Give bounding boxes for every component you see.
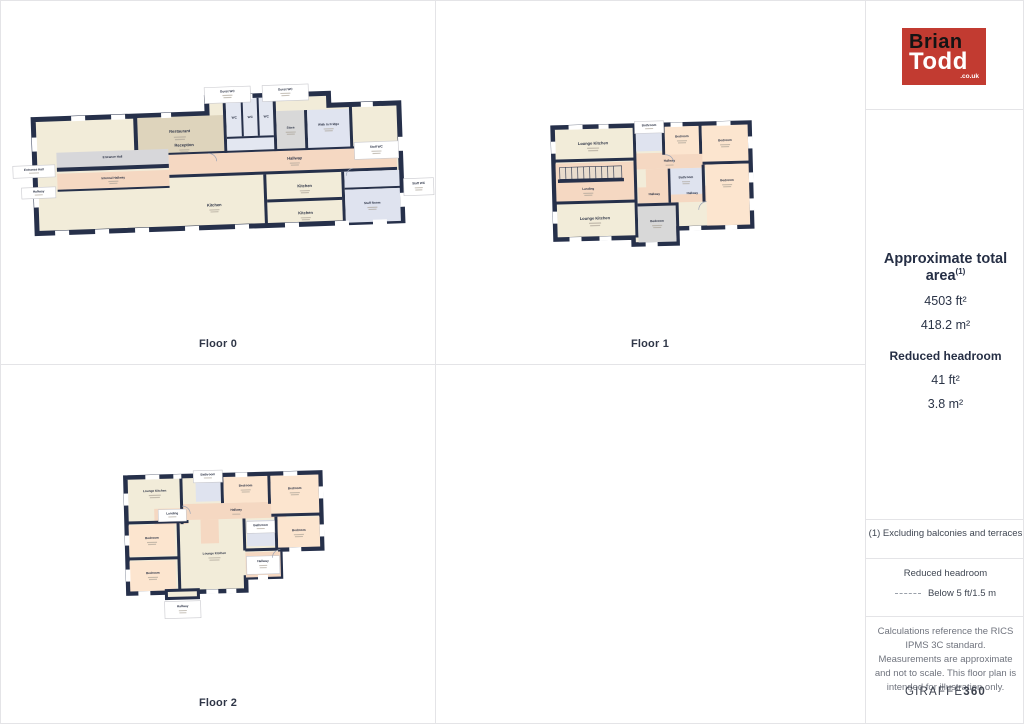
- room-label: Lounge Kitchen: [203, 551, 227, 556]
- sidebar: Brian Todd .co.uk Approximate total area…: [866, 1, 1024, 724]
- area-summary: Approximate total area(1) 4503 ft² 418.2…: [866, 251, 1024, 411]
- exclusion-note: (1) Excluding balconies and terraces: [866, 528, 1024, 539]
- store-room: [276, 110, 305, 151]
- svg-text:Bathroom: Bathroom: [642, 123, 657, 127]
- room-label: Bedroom: [675, 134, 689, 138]
- room-label: WC: [264, 114, 270, 118]
- room-label: WC: [232, 115, 238, 119]
- total-area-m: 418.2 m²: [866, 318, 1024, 332]
- room-label: Internal Hallway: [101, 175, 125, 180]
- total-area-ft: 4503 ft²: [866, 294, 1024, 308]
- bedroom-room: [706, 164, 751, 226]
- credit-normal: GIRAFFE: [905, 686, 963, 698]
- staff-room: [345, 188, 401, 223]
- svg-text:Guest WC: Guest WC: [220, 89, 236, 94]
- room-label: Bedroom: [239, 483, 253, 487]
- hallway-callout: Hallway: [22, 187, 56, 199]
- credit-bold: 360: [963, 686, 986, 698]
- guest-wc-callout-1: Guest WC: [204, 86, 251, 104]
- room-label: Walk In Fridge: [318, 122, 339, 127]
- svg-text:Bathroom: Bathroom: [253, 523, 268, 527]
- room-label: Lounge Kitchen: [143, 489, 167, 494]
- landing-callout: Landing: [158, 509, 186, 522]
- room-label: Kitchen: [298, 210, 313, 216]
- svg-text:Entrance Hall: Entrance Hall: [24, 167, 44, 172]
- room-label: Bedroom: [288, 486, 302, 490]
- room-label: Kitchen: [207, 202, 222, 208]
- bathroom-callout: Bathroom: [634, 121, 663, 134]
- room-label: Lounge Kitchen: [580, 215, 611, 221]
- floor0-label: Floor 0: [1, 338, 435, 350]
- floor2-label: Floor 2: [1, 697, 435, 709]
- area-title-superscript: (1): [956, 267, 966, 276]
- floor1-label: Floor 1: [435, 338, 865, 350]
- svg-text:Guest WC: Guest WC: [278, 87, 294, 92]
- disclaimer-text: Calculations reference the RICS IPMS 3C …: [874, 625, 1017, 695]
- staff-wc-room: [344, 170, 400, 188]
- room-label: Hallway: [287, 155, 303, 161]
- svg-text:Landing: Landing: [166, 511, 178, 515]
- room-label: Hallway: [649, 192, 661, 196]
- svg-text:Hallway: Hallway: [257, 559, 269, 563]
- legend-title: Reduced headroom: [866, 568, 1024, 579]
- giraffe360-credit: GIRAFFE360: [866, 686, 1024, 698]
- reduced-headroom-legend: Reduced headroom Below 5 ft/1.5 m: [866, 568, 1024, 599]
- reduced-headroom-title: Reduced headroom: [866, 349, 1024, 363]
- room-label: Hallway: [230, 508, 242, 512]
- staff-wc-callout-2: Staff WC: [403, 178, 434, 196]
- panel-divider-vertical: [435, 1, 436, 724]
- brand-logo-line2: Todd: [909, 51, 979, 73]
- bedroom-room: [130, 560, 177, 591]
- restaurant-room: [137, 115, 224, 155]
- floor1-plan: Landing Lounge Kitchen Lounge Kitchen Ba…: [546, 111, 764, 251]
- room-label: Bedroom: [145, 536, 159, 540]
- bathroom-callout-2: Bathroom: [247, 521, 275, 534]
- hallway-callout-bottom: Hallway: [165, 601, 201, 619]
- panel-divider-horizontal: [1, 364, 866, 365]
- room-label: Store: [287, 125, 295, 129]
- room-label: Bedroom: [720, 178, 734, 182]
- room-label: Hallway: [687, 191, 699, 195]
- room-label: Bedroom: [292, 528, 306, 532]
- area-title: Approximate total area(1): [866, 251, 1024, 284]
- entrance-hall-callout: Entrance Hall: [13, 165, 55, 178]
- bedroom-room: [702, 125, 749, 162]
- room-label: Bathroom: [679, 175, 694, 179]
- hallway-callout-right: Hallway: [246, 556, 279, 575]
- svg-text:Hallway: Hallway: [33, 189, 45, 193]
- floor2-plan: Lounge Kitchen Bathroom Bedroom Bedroom …: [117, 461, 333, 619]
- reduced-headroom-m: 3.8 m²: [866, 397, 1024, 411]
- svg-text:Staff WC: Staff WC: [412, 181, 426, 185]
- room-label: Staff Room: [364, 201, 381, 206]
- room-label: Lounge Kitchen: [578, 140, 609, 146]
- room-label: Bedroom: [718, 138, 732, 142]
- brand-logo: Brian Todd .co.uk: [902, 28, 986, 85]
- reduced-headroom-ft: 41 ft²: [866, 373, 1024, 387]
- bottom-stub: [166, 590, 198, 599]
- room-label: Restaurant: [169, 128, 191, 134]
- room-label: WC: [248, 115, 254, 119]
- svg-text:Hallway: Hallway: [177, 604, 189, 608]
- bedroom-room: [129, 524, 176, 556]
- svg-text:Staff WC: Staff WC: [370, 144, 384, 148]
- wc-cluster: [226, 97, 275, 151]
- stairs: [558, 166, 624, 183]
- room-label: Bedroom: [650, 219, 664, 223]
- room-label: Kitchen: [297, 183, 312, 189]
- room-label: Entrance Hall: [103, 155, 123, 160]
- bedroom-room: [638, 205, 677, 242]
- room-label: Reception: [174, 142, 194, 148]
- guest-wc-callout-2: Guest WC: [262, 84, 309, 102]
- svg-text:Bathroom: Bathroom: [200, 472, 215, 476]
- floorplan-page: Floor 0 Floor 1 Floor 2 WC WC WC Store: [0, 0, 1024, 724]
- floor0-plan: WC WC WC Store Walk In Fridge Restaurant…: [13, 87, 433, 251]
- room-label: Landing: [582, 187, 594, 191]
- bathroom-callout: Bathroom: [193, 470, 222, 483]
- staff-wc-callout-1: Staff WC: [354, 141, 399, 160]
- legend-label: Below 5 ft/1.5 m: [928, 588, 996, 599]
- room-label: Bedroom: [146, 571, 160, 575]
- dashed-line-swatch: [895, 593, 921, 594]
